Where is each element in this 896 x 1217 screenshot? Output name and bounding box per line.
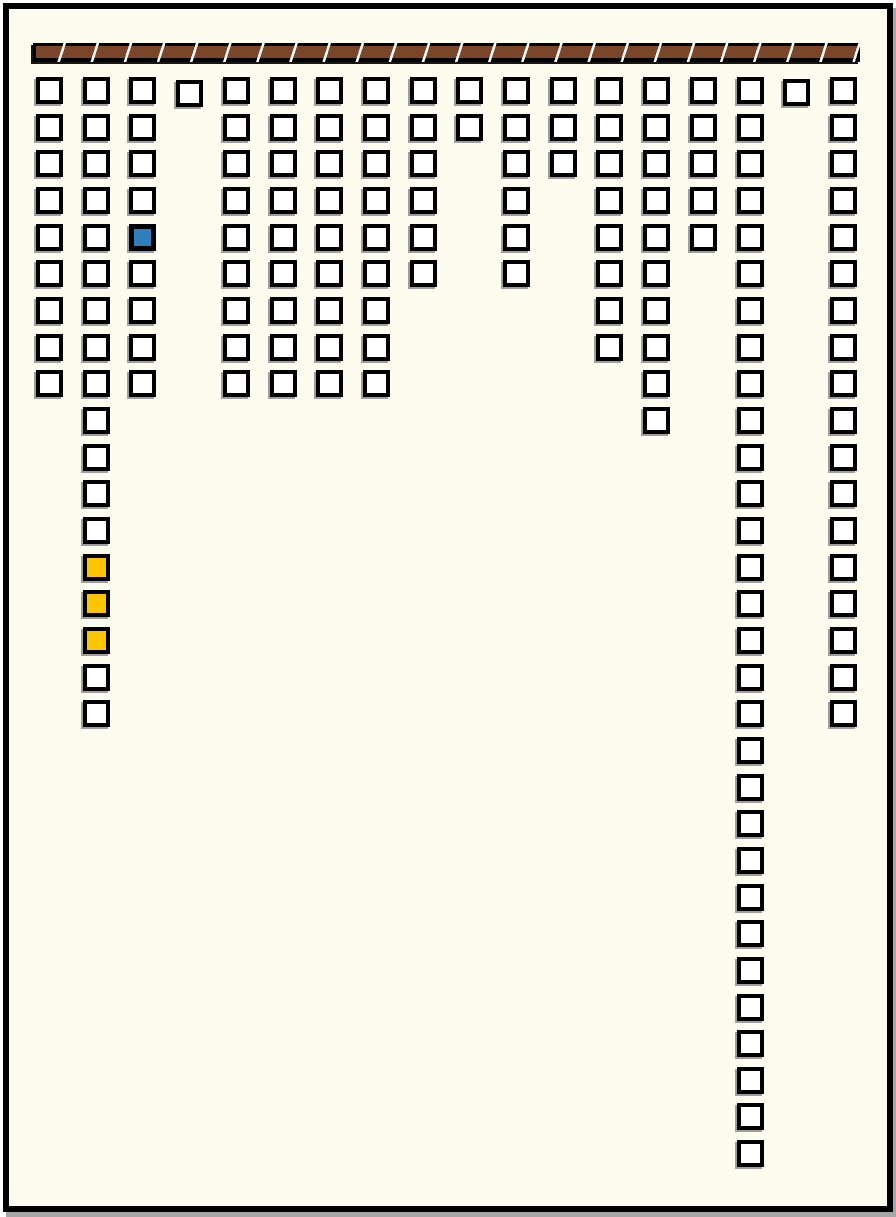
- board-cell-c16-r3[interactable]: [737, 150, 764, 177]
- board-cell-c6-r4[interactable]: [270, 187, 297, 214]
- board-cell-c5-r5[interactable]: [223, 224, 250, 251]
- board-cell-c2-r13[interactable]: [83, 517, 110, 544]
- board-cell-c6-r2[interactable]: [270, 114, 297, 141]
- board-cell-c18-r17[interactable]: [830, 664, 857, 691]
- board-cell-c1-r2[interactable]: [36, 114, 63, 141]
- board-cell-c15-r1[interactable]: [690, 77, 717, 104]
- board-cell-c2-r1[interactable]: [83, 77, 110, 104]
- board-cell-c1-r7[interactable]: [36, 297, 63, 324]
- board-cell-c3-r7[interactable]: [129, 297, 156, 324]
- board-cell-c1-r4[interactable]: [36, 187, 63, 214]
- board-cell-c11-r2[interactable]: [503, 114, 530, 141]
- board-cell-c5-r6[interactable]: [223, 260, 250, 287]
- board-cell-c16-r25[interactable]: [737, 957, 764, 984]
- board-cell-c18-r1[interactable]: [830, 77, 857, 104]
- board-cell-c2-r5[interactable]: [83, 224, 110, 251]
- board-cell-c5-r3[interactable]: [223, 150, 250, 177]
- board-cell-c18-r12[interactable]: [830, 480, 857, 507]
- board-cell-c6-r9[interactable]: [270, 370, 297, 397]
- board-cell-c16-r10[interactable]: [737, 407, 764, 434]
- board-cell-c14-r8[interactable]: [643, 334, 670, 361]
- board-cell-c12-r1[interactable]: [550, 77, 577, 104]
- board-cell-c14-r2[interactable]: [643, 114, 670, 141]
- board-cell-c2-r6[interactable]: [83, 260, 110, 287]
- board-cell-c9-r4[interactable]: [410, 187, 437, 214]
- board-cell-c3-r1[interactable]: [129, 77, 156, 104]
- board-cell-c5-r2[interactable]: [223, 114, 250, 141]
- board-cell-c2-r8[interactable]: [83, 334, 110, 361]
- board-cell-c16-r13[interactable]: [737, 517, 764, 544]
- board-cell-c18-r8[interactable]: [830, 334, 857, 361]
- board-cell-c12-r2[interactable]: [550, 114, 577, 141]
- board-cell-c18-r9[interactable]: [830, 370, 857, 397]
- board-cell-c2-r17[interactable]: [83, 664, 110, 691]
- board-cell-c11-r3[interactable]: [503, 150, 530, 177]
- board-cell-c13-r2[interactable]: [596, 114, 623, 141]
- board-cell-c18-r4[interactable]: [830, 187, 857, 214]
- board-cell-c14-r6[interactable]: [643, 260, 670, 287]
- board-cell-c13-r1[interactable]: [596, 77, 623, 104]
- board-cell-c14-r4[interactable]: [643, 187, 670, 214]
- board-cell-c8-r9[interactable]: [363, 370, 390, 397]
- board-cell-c17-r1[interactable]: [783, 79, 810, 106]
- board-cell-c5-r4[interactable]: [223, 187, 250, 214]
- board-cell-c6-r7[interactable]: [270, 297, 297, 324]
- board-cell-c8-r6[interactable]: [363, 260, 390, 287]
- board-cell-c1-r3[interactable]: [36, 150, 63, 177]
- board-cell-c2-r2[interactable]: [83, 114, 110, 141]
- board-cell-c18-r14[interactable]: [830, 554, 857, 581]
- board-cell-c7-r4[interactable]: [316, 187, 343, 214]
- board-cell-c18-r2[interactable]: [830, 114, 857, 141]
- board-cell-c2-r18[interactable]: [83, 700, 110, 727]
- board-cell-c1-r9[interactable]: [36, 370, 63, 397]
- board-cell-c8-r4[interactable]: [363, 187, 390, 214]
- board-cell-c15-r3[interactable]: [690, 150, 717, 177]
- board-cell-c16-r21[interactable]: [737, 810, 764, 837]
- board-cell-c7-r6[interactable]: [316, 260, 343, 287]
- board-cell-c8-r7[interactable]: [363, 297, 390, 324]
- board-cell-c2-r11[interactable]: [83, 444, 110, 471]
- board-cell-c8-r5[interactable]: [363, 224, 390, 251]
- board-cell-c11-r6[interactable]: [503, 260, 530, 287]
- board-cell-c13-r7[interactable]: [596, 297, 623, 324]
- board-cell-c14-r7[interactable]: [643, 297, 670, 324]
- board-cell-c3-r2[interactable]: [129, 114, 156, 141]
- board-cell-c2-r12[interactable]: [83, 480, 110, 507]
- board-cell-c5-r1[interactable]: [223, 77, 250, 104]
- board-cell-c14-r5[interactable]: [643, 224, 670, 251]
- board-cell-c16-r7[interactable]: [737, 297, 764, 324]
- board-cell-c16-r9[interactable]: [737, 370, 764, 397]
- board-cell-c8-r2[interactable]: [363, 114, 390, 141]
- board-cell-c2-r16[interactable]: [83, 627, 110, 654]
- board-cell-c7-r7[interactable]: [316, 297, 343, 324]
- board-cell-c7-r9[interactable]: [316, 370, 343, 397]
- board-cell-c2-r3[interactable]: [83, 150, 110, 177]
- board-cell-c6-r1[interactable]: [270, 77, 297, 104]
- board-cell-c8-r8[interactable]: [363, 334, 390, 361]
- board-cell-c16-r27[interactable]: [737, 1030, 764, 1057]
- board-cell-c5-r7[interactable]: [223, 297, 250, 324]
- board-cell-c13-r6[interactable]: [596, 260, 623, 287]
- board-cell-c5-r9[interactable]: [223, 370, 250, 397]
- board-cell-c16-r11[interactable]: [737, 444, 764, 471]
- board-cell-c9-r5[interactable]: [410, 224, 437, 251]
- board-cell-c13-r8[interactable]: [596, 334, 623, 361]
- board-cell-c18-r3[interactable]: [830, 150, 857, 177]
- board-cell-c9-r2[interactable]: [410, 114, 437, 141]
- board-cell-c8-r3[interactable]: [363, 150, 390, 177]
- board-cell-c13-r5[interactable]: [596, 224, 623, 251]
- board-cell-c3-r9[interactable]: [129, 370, 156, 397]
- board-cell-c18-r18[interactable]: [830, 700, 857, 727]
- board-cell-c13-r4[interactable]: [596, 187, 623, 214]
- board-cell-c3-r3[interactable]: [129, 150, 156, 177]
- board-cell-c16-r2[interactable]: [737, 114, 764, 141]
- board-cell-c13-r3[interactable]: [596, 150, 623, 177]
- board-cell-c1-r5[interactable]: [36, 224, 63, 251]
- board-cell-c14-r10[interactable]: [643, 407, 670, 434]
- board-cell-c2-r4[interactable]: [83, 187, 110, 214]
- beam-hatch-pattern: [33, 43, 860, 62]
- board-cell-c16-r19[interactable]: [737, 737, 764, 764]
- board-cell-c18-r10[interactable]: [830, 407, 857, 434]
- board-cell-c16-r12[interactable]: [737, 480, 764, 507]
- board-cell-c16-r28[interactable]: [737, 1067, 764, 1094]
- board-cell-c1-r8[interactable]: [36, 334, 63, 361]
- board-cell-c2-r15[interactable]: [83, 590, 110, 617]
- board-cell-c16-r17[interactable]: [737, 664, 764, 691]
- board-cell-c2-r10[interactable]: [83, 407, 110, 434]
- board-cell-c6-r8[interactable]: [270, 334, 297, 361]
- board-cell-c16-r14[interactable]: [737, 554, 764, 581]
- board-cell-c18-r11[interactable]: [830, 444, 857, 471]
- board-cell-c16-r26[interactable]: [737, 994, 764, 1021]
- board-cell-c7-r3[interactable]: [316, 150, 343, 177]
- page-background: { "board": { "colors": { "canvas": "#FCF…: [0, 0, 896, 1217]
- board-cell-c11-r4[interactable]: [503, 187, 530, 214]
- board-cell-c14-r3[interactable]: [643, 150, 670, 177]
- board-cell-c16-r1[interactable]: [737, 77, 764, 104]
- board-panel: [3, 3, 893, 1212]
- board-cell-c3-r5[interactable]: [129, 224, 156, 251]
- board-cell-c10-r1[interactable]: [456, 77, 483, 104]
- board-cell-c16-r18[interactable]: [737, 700, 764, 727]
- board-cell-c6-r3[interactable]: [270, 150, 297, 177]
- board-cell-c16-r29[interactable]: [737, 1103, 764, 1130]
- hatched-header-beam: [33, 43, 860, 62]
- board-cell-c16-r4[interactable]: [737, 187, 764, 214]
- board-cell-c16-r5[interactable]: [737, 224, 764, 251]
- board-cell-c2-r9[interactable]: [83, 370, 110, 397]
- board-cell-c12-r3[interactable]: [550, 150, 577, 177]
- board-cell-c18-r6[interactable]: [830, 260, 857, 287]
- board-cell-c14-r9[interactable]: [643, 370, 670, 397]
- board-cell-c15-r4[interactable]: [690, 187, 717, 214]
- board-cell-c14-r1[interactable]: [643, 77, 670, 104]
- board-cell-c11-r1[interactable]: [503, 77, 530, 104]
- board-cell-c9-r3[interactable]: [410, 150, 437, 177]
- board-cell-c2-r14[interactable]: [83, 554, 110, 581]
- board-cell-c15-r5[interactable]: [690, 224, 717, 251]
- board-cell-c15-r2[interactable]: [690, 114, 717, 141]
- board-cell-c11-r5[interactable]: [503, 224, 530, 251]
- board-cell-c9-r6[interactable]: [410, 260, 437, 287]
- board-cell-c10-r2[interactable]: [456, 114, 483, 141]
- board-cell-c16-r16[interactable]: [737, 627, 764, 654]
- board-cell-c2-r7[interactable]: [83, 297, 110, 324]
- board-cell-c16-r30[interactable]: [737, 1140, 764, 1167]
- board-cell-c16-r22[interactable]: [737, 847, 764, 874]
- board-cell-c7-r8[interactable]: [316, 334, 343, 361]
- board-cell-c16-r15[interactable]: [737, 590, 764, 617]
- board-cell-c18-r7[interactable]: [830, 297, 857, 324]
- board-cell-c16-r20[interactable]: [737, 774, 764, 801]
- board-cell-c3-r6[interactable]: [129, 260, 156, 287]
- board-cell-c18-r5[interactable]: [830, 224, 857, 251]
- board-cell-c6-r6[interactable]: [270, 260, 297, 287]
- board-cell-c18-r13[interactable]: [830, 517, 857, 544]
- board-cell-c18-r16[interactable]: [830, 627, 857, 654]
- board-cell-c16-r6[interactable]: [737, 260, 764, 287]
- board-cell-c6-r5[interactable]: [270, 224, 297, 251]
- board-cell-c1-r6[interactable]: [36, 260, 63, 287]
- board-cell-c16-r8[interactable]: [737, 334, 764, 361]
- board-cell-c9-r1[interactable]: [410, 77, 437, 104]
- board-cell-c7-r2[interactable]: [316, 114, 343, 141]
- board-cell-c8-r1[interactable]: [363, 77, 390, 104]
- board-cell-c3-r8[interactable]: [129, 334, 156, 361]
- board-cell-c5-r8[interactable]: [223, 334, 250, 361]
- board-cell-c7-r5[interactable]: [316, 224, 343, 251]
- board-cell-c18-r15[interactable]: [830, 590, 857, 617]
- board-cell-c3-r4[interactable]: [129, 187, 156, 214]
- board-cell-c4-r1[interactable]: [176, 80, 203, 107]
- board-cell-c16-r23[interactable]: [737, 884, 764, 911]
- board-cell-c1-r1[interactable]: [36, 77, 63, 104]
- board-cell-c16-r24[interactable]: [737, 920, 764, 947]
- board-cell-c7-r1[interactable]: [316, 77, 343, 104]
